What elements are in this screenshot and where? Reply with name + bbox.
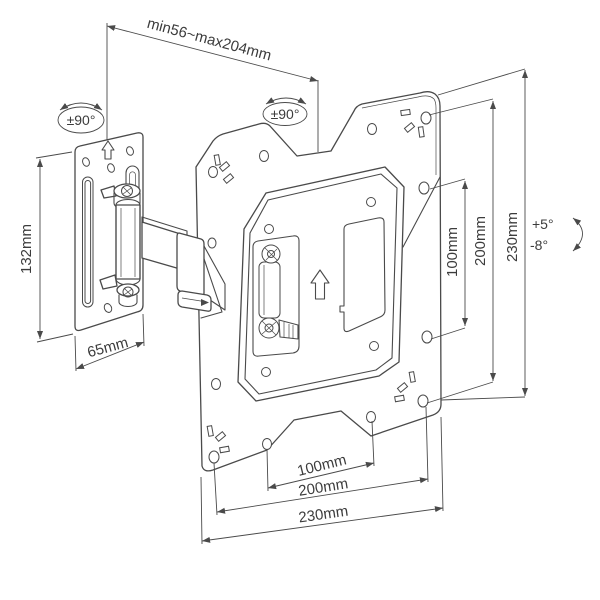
- swivel-right-label: ±90°: [271, 106, 300, 122]
- swivel-left-label: ±90°: [67, 112, 96, 128]
- dim-vesa-height-200-label: 200mm: [472, 216, 489, 266]
- wall-mount-dimension-diagram: min56~max204mm ±90° ±90° 132mm 65mm: [0, 0, 600, 600]
- dim-wall-plate-width-label: 65mm: [86, 334, 131, 361]
- swivel-right-annotation: ±90°: [263, 98, 307, 126]
- dim-wall-plate-height: 132mm: [18, 152, 73, 342]
- dim-extension-range-label: min56~max204mm: [145, 15, 273, 65]
- dim-plate-height-230-label: 230mm: [504, 212, 521, 262]
- swivel-left-annotation: ±90°: [58, 103, 104, 133]
- tilt-up-label: +5°: [532, 216, 554, 232]
- tilt-down-label: -8°: [530, 237, 548, 253]
- tilt-bracket-plate: [238, 167, 404, 401]
- dim-extension-range: min56~max204mm: [107, 15, 318, 152]
- dim-plate-width-230-label: 230mm: [297, 503, 349, 527]
- tilt-arrow-icon: [573, 218, 583, 251]
- dim-vesa-height-100-label: 100mm: [444, 227, 461, 277]
- hinge-bottom-nut: [117, 284, 139, 296]
- tilt-annotation: +5° -8°: [530, 216, 583, 253]
- dim-wall-plate-height-label: 132mm: [18, 224, 35, 274]
